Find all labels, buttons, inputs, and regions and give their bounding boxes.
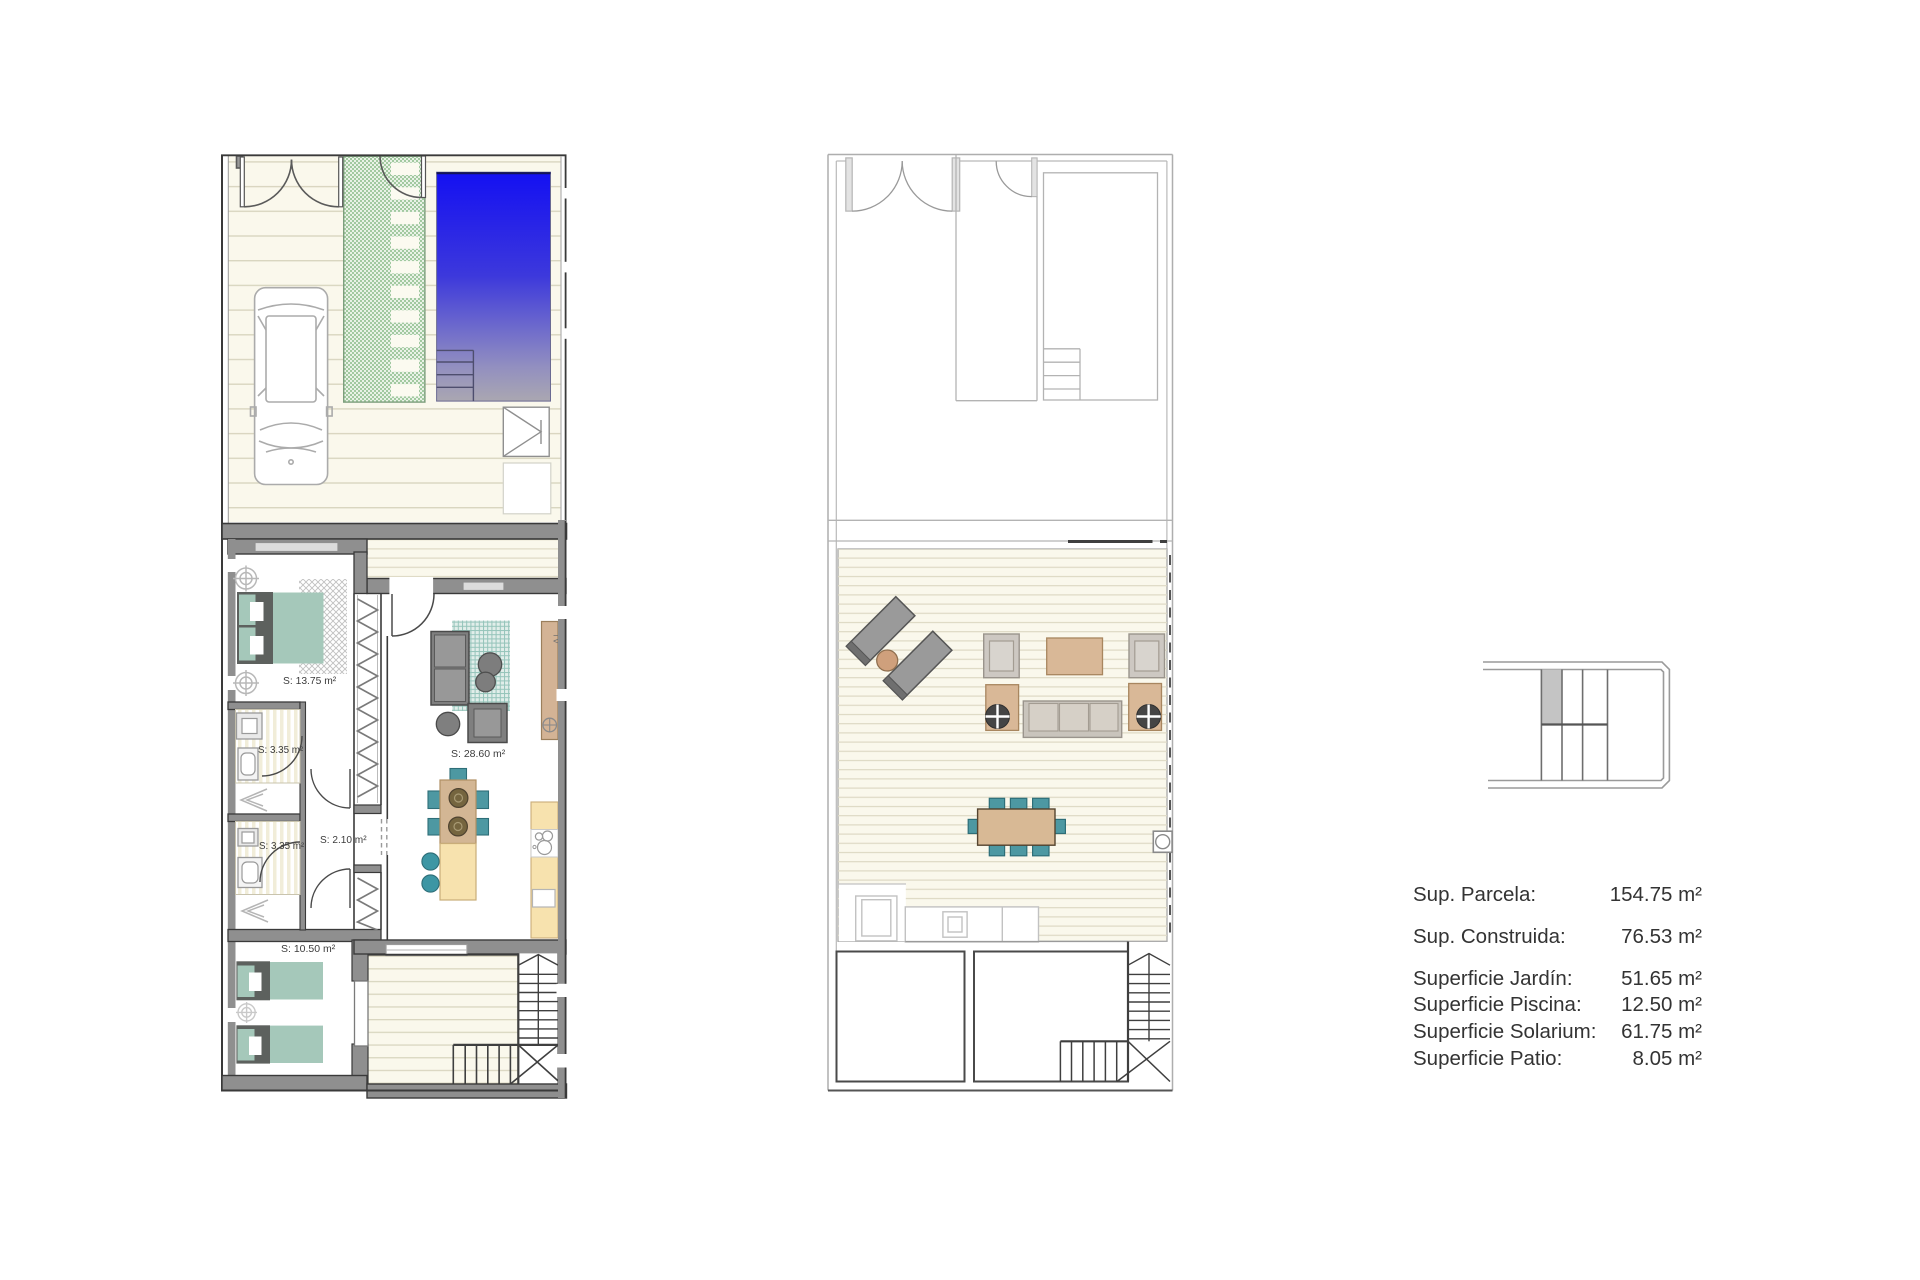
- svg-text:S: 3.35 m²: S: 3.35 m²: [259, 841, 305, 852]
- svg-text:S: 10.50 m²: S: 10.50 m²: [281, 943, 336, 955]
- svg-text:76.53 m²: 76.53 m²: [1621, 925, 1702, 948]
- svg-text:61.75 m²: 61.75 m²: [1621, 1020, 1702, 1043]
- svg-text:Superficie Patio:: Superficie Patio:: [1413, 1047, 1562, 1070]
- svg-text:Sup. Parcela:: Sup. Parcela:: [1413, 883, 1536, 906]
- svg-text:8.05 m²: 8.05 m²: [1633, 1047, 1703, 1070]
- svg-text:S: 28.60 m²: S: 28.60 m²: [451, 748, 506, 760]
- svg-text:S: 13.75 m²: S: 13.75 m²: [283, 676, 337, 687]
- svg-text:Sup. Construida:: Sup. Construida:: [1413, 925, 1566, 948]
- svg-text:Superficie Solarium:: Superficie Solarium:: [1413, 1020, 1596, 1043]
- svg-text:12.50 m²: 12.50 m²: [1621, 993, 1702, 1016]
- svg-text:S: 3.35 m²: S: 3.35 m²: [258, 745, 304, 756]
- svg-text:S: 2.10 m²: S: 2.10 m²: [320, 835, 367, 846]
- svg-text:51.65 m²: 51.65 m²: [1621, 967, 1702, 990]
- svg-text:154.75 m²: 154.75 m²: [1610, 883, 1702, 906]
- svg-text:Superficie Jardín:: Superficie Jardín:: [1413, 967, 1573, 990]
- svg-text:Superficie Piscina:: Superficie Piscina:: [1413, 993, 1582, 1016]
